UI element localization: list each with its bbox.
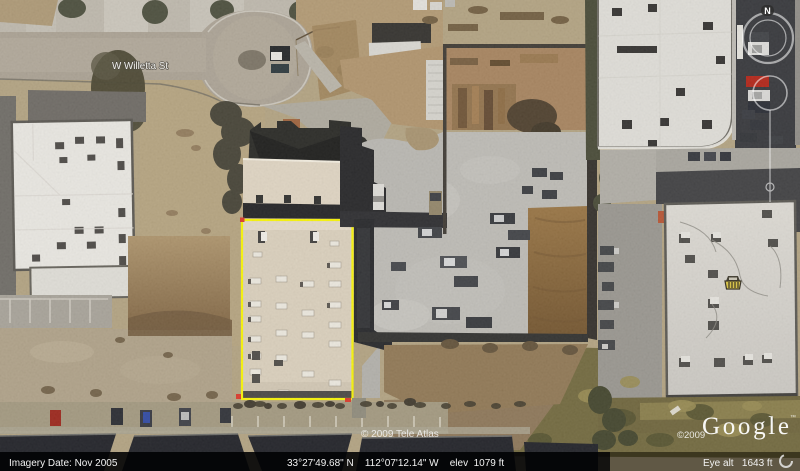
svg-text:Imagery Date: Nov 2005: Imagery Date: Nov 2005	[9, 458, 118, 469]
svg-text:™: ™	[790, 414, 796, 421]
svg-text:©2009: ©2009	[677, 430, 705, 441]
svg-text:© 2009 Tele Atlas: © 2009 Tele Atlas	[361, 429, 439, 440]
svg-text:33°27'49.68" N 112°07'12.14: 33°27'49.68" N 112°07'12.14" W elev 1079…	[287, 458, 504, 469]
svg-text:N: N	[764, 6, 771, 16]
svg-text:W Willetta St: W Willetta St	[112, 61, 168, 72]
svg-text:Eye alt 1643 ft: Eye alt 1643 ft	[703, 458, 773, 469]
